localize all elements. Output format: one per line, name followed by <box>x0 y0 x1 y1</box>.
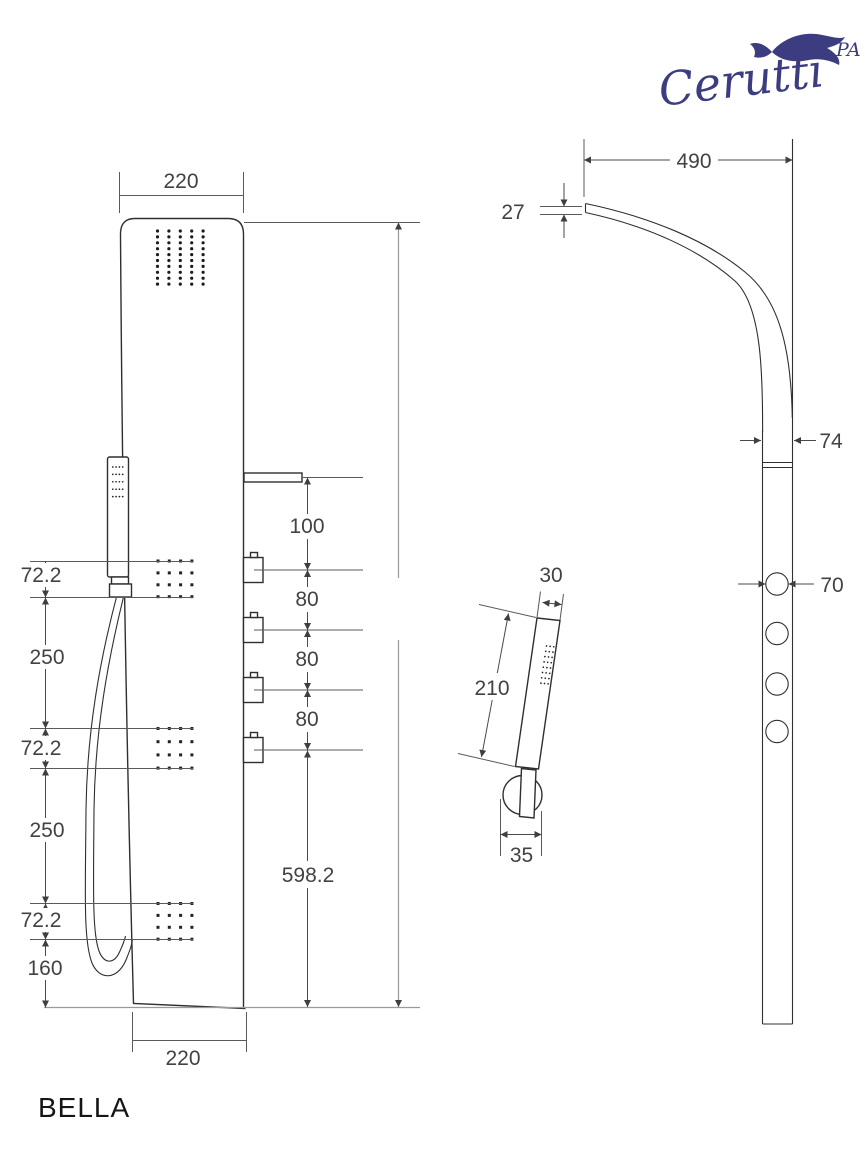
dim-label-lower-section: 598.2 <box>282 864 335 887</box>
dim-label-jet3-height: 72.2 <box>21 909 62 932</box>
hand-shower-detail: 30 210 35 <box>458 564 564 867</box>
knobs-front <box>244 553 264 763</box>
dim-panel-depth: 74 <box>740 430 843 453</box>
side-view <box>586 139 793 1024</box>
dim-label-knob-gap2: 80 <box>295 648 318 671</box>
shower-panel-drawing: 220 220 72.2 <box>0 0 868 1158</box>
dim-hand-width: 30 <box>537 564 564 620</box>
body-jets-3 <box>157 902 194 941</box>
dim-top-width: 220 <box>120 170 244 213</box>
hand-shower-front <box>108 457 132 597</box>
front-view-dimensions: 220 220 72.2 <box>17 170 420 1070</box>
dim-label-top-width: 220 <box>163 170 198 193</box>
dim-label-knob-diameter: 70 <box>820 574 843 597</box>
hand-shower-stem <box>520 769 537 819</box>
dim-label-hand-width: 30 <box>539 564 562 587</box>
dim-bottom-width: 220 <box>133 1012 247 1070</box>
model-name: BELLA <box>38 1092 130 1123</box>
dim-label-span1: 250 <box>29 646 64 669</box>
dim-label-head-tip-thickness: 27 <box>501 201 524 224</box>
dim-label-bottom-offset: 160 <box>27 957 62 980</box>
brand-logo: PA Cerutti <box>655 34 860 117</box>
dim-label-panel-depth: 74 <box>819 430 843 453</box>
right-extension-lines <box>244 223 420 751</box>
spout <box>244 473 302 482</box>
dim-label-spout-to-knob: 100 <box>289 515 324 538</box>
dim-knob-diameter: 70 <box>738 574 844 597</box>
technical-drawing-page: 220 220 72.2 <box>0 0 868 1158</box>
front-panel-outline <box>121 219 246 1009</box>
head-outer-curve <box>586 204 793 419</box>
knob-spacing-dims: 100 80 80 80 <box>287 478 328 751</box>
dim-label-knob-gap1: 80 <box>295 588 318 611</box>
body-jets-1 <box>157 560 194 599</box>
logo-suffix: PA <box>835 39 861 61</box>
side-seam <box>763 463 793 468</box>
dim-label-bottom-width: 220 <box>165 1047 200 1070</box>
dim-head-reach: 490 <box>584 139 793 197</box>
head-spray-holes <box>156 229 205 285</box>
body-jets-2 <box>157 727 194 770</box>
head-inner-curve <box>586 213 763 433</box>
dim-label-head-reach: 490 <box>676 150 711 173</box>
front-view <box>85 219 302 1009</box>
dim-label-mount-width: 35 <box>510 844 533 867</box>
dim-label-jet2-height: 72.2 <box>21 737 62 760</box>
dim-label-knob-gap3: 80 <box>295 708 318 731</box>
logo-wordmark: Cerutti <box>655 43 826 117</box>
side-knobs <box>766 573 788 743</box>
dim-label-hand-length: 210 <box>474 677 509 700</box>
dim-label-jet1-height: 72.2 <box>21 564 62 587</box>
dim-label-span2: 250 <box>29 819 64 842</box>
left-dim-chain: 72.2 250 72.2 250 72.2 160 <box>17 562 69 1008</box>
dim-lower-section: 598.2 <box>280 751 336 1008</box>
hand-shower-body <box>516 618 561 769</box>
dim-head-tip-thickness: 27 <box>501 183 582 238</box>
